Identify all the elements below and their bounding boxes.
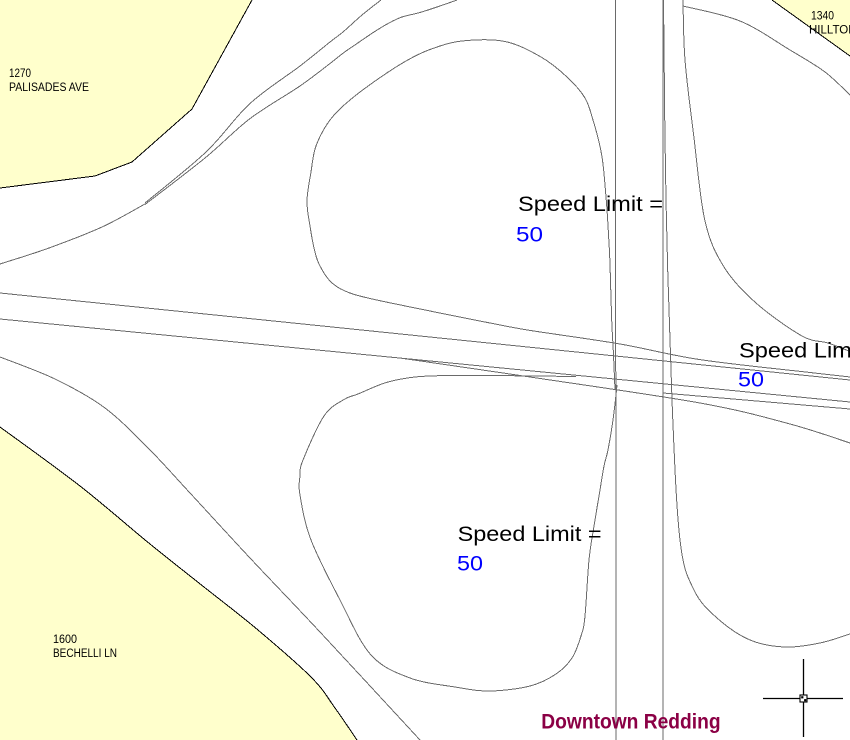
svg-text:1600: 1600 [53,634,77,646]
svg-text:1270: 1270 [9,68,31,80]
svg-text:50: 50 [457,552,483,576]
svg-text:1340: 1340 [811,11,834,23]
svg-text:50: 50 [738,368,764,392]
svg-text:BECHELLI LN: BECHELLI LN [53,648,117,660]
svg-text:Speed Limit =: Speed Limit = [739,339,850,363]
svg-text:Speed Limit =: Speed Limit = [458,522,602,546]
svg-text:Downtown Redding: Downtown Redding [541,711,720,734]
svg-text:Speed Limit =: Speed Limit = [518,192,663,216]
svg-text:PALISADES AVE: PALISADES AVE [9,82,89,94]
svg-text:50: 50 [516,223,543,247]
svg-text:HILLTOP DR: HILLTOP DR [809,25,850,37]
